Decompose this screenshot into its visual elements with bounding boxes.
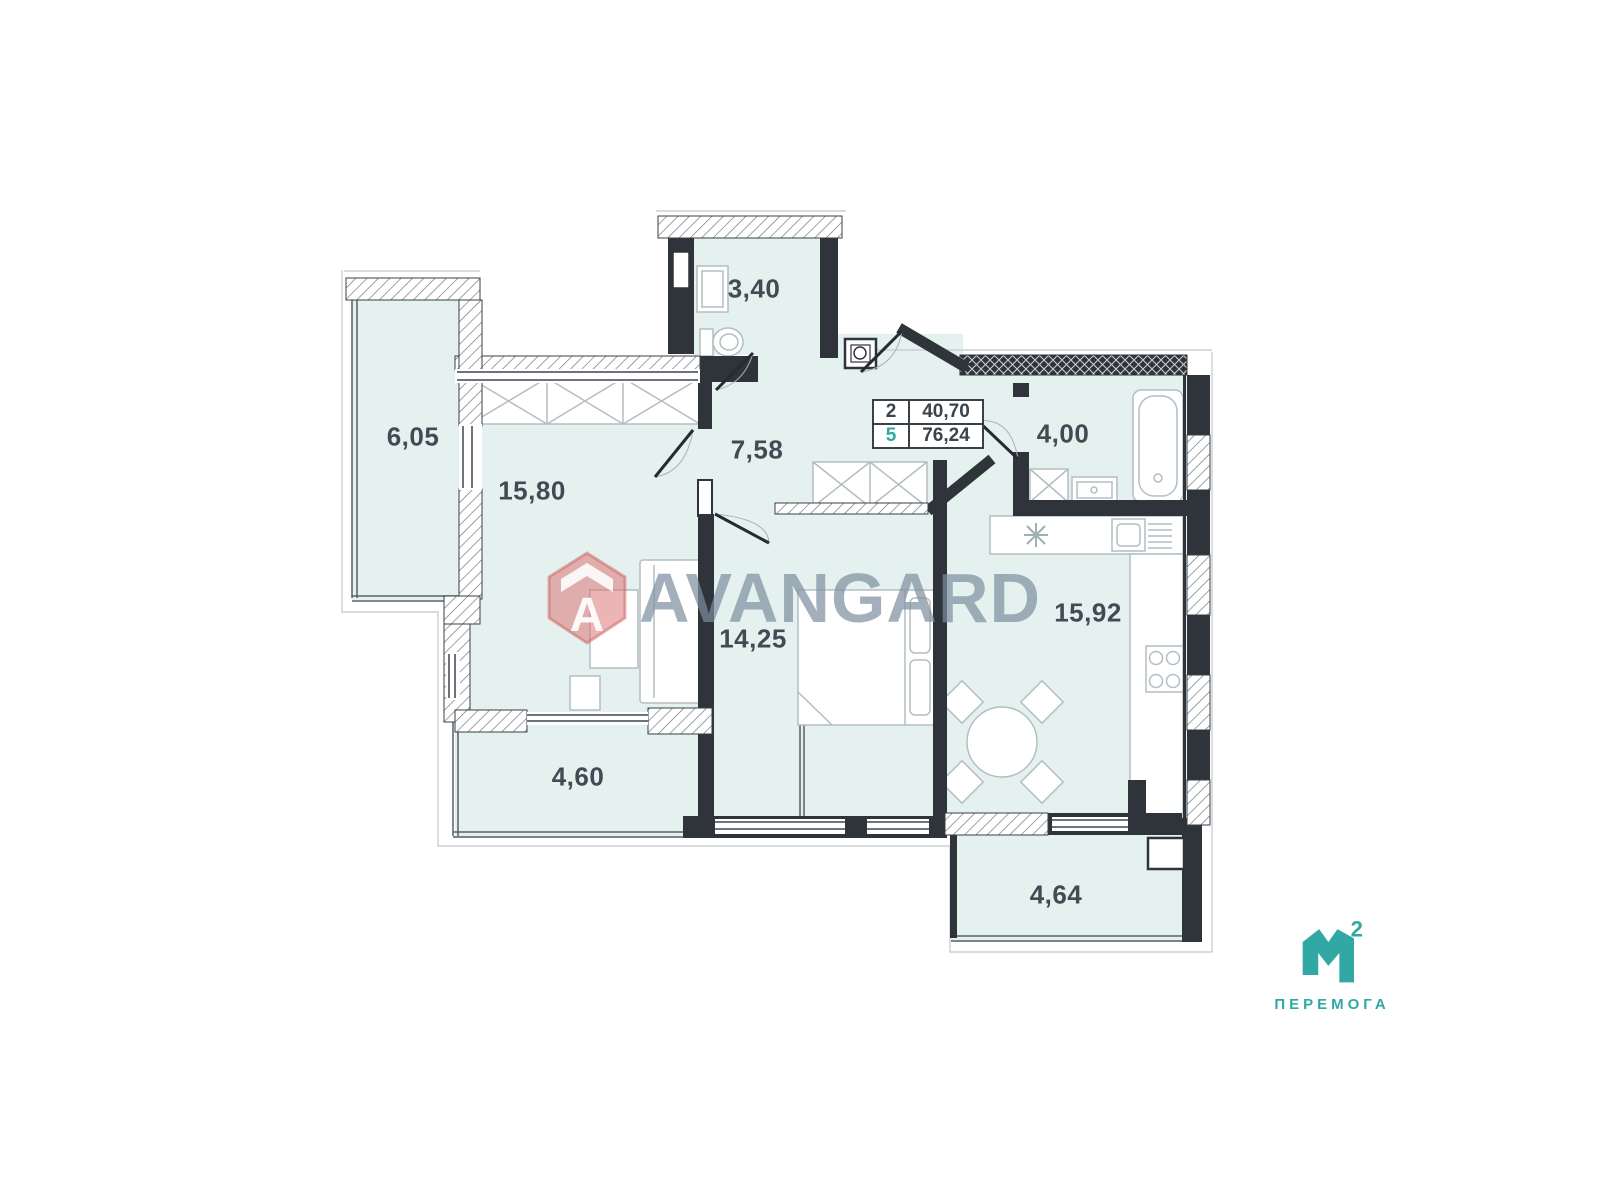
room-area-label-hallway: 7,58 — [731, 435, 784, 466]
m2-mark — [1303, 929, 1354, 982]
watermark-icon-letter: A — [570, 589, 605, 642]
toilet — [700, 328, 743, 356]
avangard-watermark: A AVANGARD — [545, 550, 1041, 646]
m2-logo-icon: 2 — [1294, 920, 1370, 986]
total-area-value: 76,24 — [910, 425, 982, 447]
living-area-value: 40,70 — [910, 401, 982, 423]
wardrobe-living — [470, 378, 700, 424]
floor-plan-page: 6,05 15,80 7,58 3,40 4,00 15,92 14,25 4,… — [0, 0, 1600, 1200]
floor-number: 5 — [874, 425, 910, 447]
window-balcony460-top — [527, 712, 648, 725]
wc-sink — [697, 266, 728, 312]
window-left-lower — [446, 652, 460, 700]
wash-basin — [1072, 477, 1117, 503]
room-area-label-living-room: 15,80 — [498, 476, 566, 507]
room-area-label-wc: 3,40 — [728, 274, 781, 305]
room-area-label-bathroom: 4,00 — [1037, 419, 1090, 450]
ac-box — [1148, 838, 1184, 869]
room-area-label-kitchen: 15,92 — [1054, 598, 1122, 629]
info-table-row: 5 76,24 — [874, 423, 982, 447]
room-area-label-balcony-left: 6,05 — [387, 422, 440, 453]
washing-machine — [1030, 469, 1068, 502]
info-table-row: 2 40,70 — [874, 401, 982, 423]
m2-sup: 2 — [1351, 920, 1363, 942]
window-kitchen-bottom — [1052, 817, 1128, 831]
rooms-count: 2 — [874, 401, 910, 423]
peremoga-logo-text: ПЕРЕМОГА — [1262, 996, 1402, 1013]
room-area-label-balcony-bl: 4,60 — [552, 762, 605, 793]
room-area-label-balcony-br: 4,64 — [1030, 880, 1083, 911]
peremoga-logo: 2 ПЕРЕМОГА — [1262, 920, 1402, 1013]
window-bedroom-bottom-1 — [715, 819, 845, 834]
bathtub — [1133, 390, 1183, 502]
avangard-house-icon: A — [545, 550, 629, 646]
wardrobe-hallway — [813, 462, 927, 507]
vent-symbol — [1024, 523, 1048, 547]
stove — [1146, 646, 1183, 692]
area-info-table: 2 40,70 5 76,24 — [872, 399, 984, 449]
watermark-brand-text: AVANGARD — [639, 563, 1041, 633]
window-bedroom-bottom-2 — [867, 819, 929, 834]
window-balcony-living — [459, 424, 482, 490]
window-living-top — [455, 369, 700, 383]
